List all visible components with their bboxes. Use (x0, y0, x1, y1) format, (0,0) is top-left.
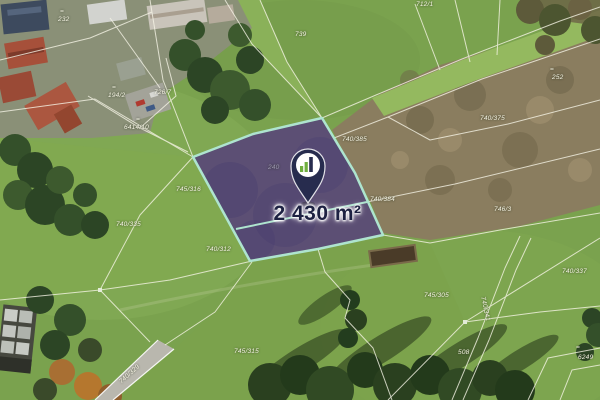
map-canvas[interactable]: =232739712/1=252=194/2726/7=6414/10740/3… (0, 0, 600, 400)
parcel-area-label: 2 430 m² (235, 202, 400, 226)
pin-circle (296, 153, 320, 177)
aerial-photo-layer (0, 0, 600, 400)
